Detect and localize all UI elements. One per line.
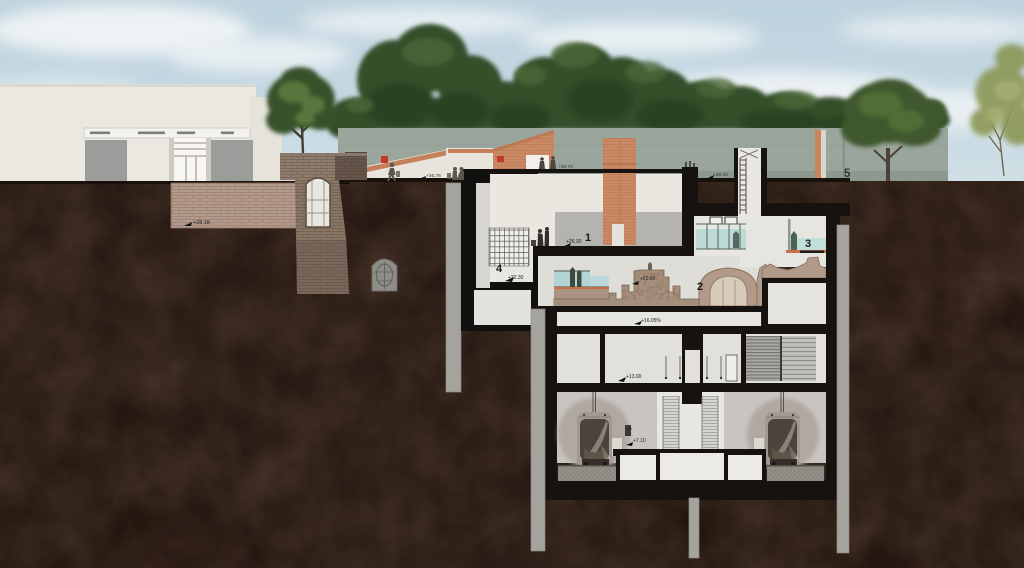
- svg-text:3: 3: [805, 238, 811, 250]
- svg-text:+13.00: +13.00: [626, 374, 642, 380]
- svg-text:+26.30: +26.30: [566, 239, 582, 245]
- svg-text:+22.30: +22.30: [508, 275, 524, 281]
- svg-text:4: 4: [496, 263, 503, 275]
- svg-text:+36.00: +36.00: [713, 172, 728, 178]
- svg-text:+16.05%: +16.05%: [641, 318, 661, 324]
- svg-text:2: 2: [697, 281, 703, 293]
- svg-text:Bo: Bo: [627, 426, 633, 431]
- svg-text:+36.76: +36.76: [426, 173, 441, 179]
- svg-text:+30.70: +30.70: [558, 164, 573, 170]
- svg-text:+22.60: +22.60: [640, 276, 656, 282]
- svg-text:+7.10: +7.10: [633, 438, 646, 444]
- svg-text:+28.18: +28.18: [193, 220, 210, 226]
- svg-text:1: 1: [585, 232, 591, 244]
